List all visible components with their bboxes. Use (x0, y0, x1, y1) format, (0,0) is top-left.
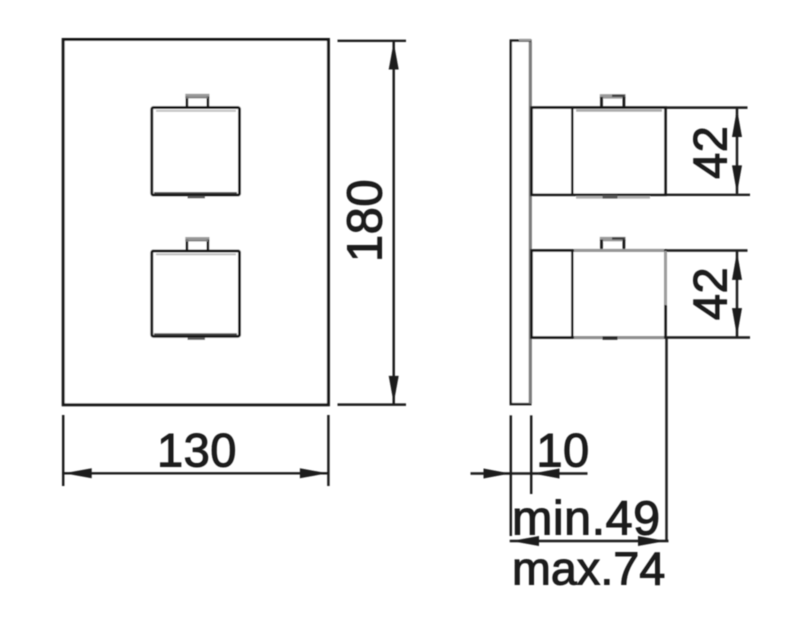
svg-text:10: 10 (536, 423, 589, 476)
svg-text:max.74: max.74 (512, 543, 665, 595)
svg-text:42: 42 (684, 267, 737, 320)
svg-text:42: 42 (684, 126, 737, 179)
svg-text:min.49: min.49 (512, 492, 661, 546)
svg-text:180: 180 (339, 179, 393, 262)
svg-text:130: 130 (157, 424, 237, 477)
